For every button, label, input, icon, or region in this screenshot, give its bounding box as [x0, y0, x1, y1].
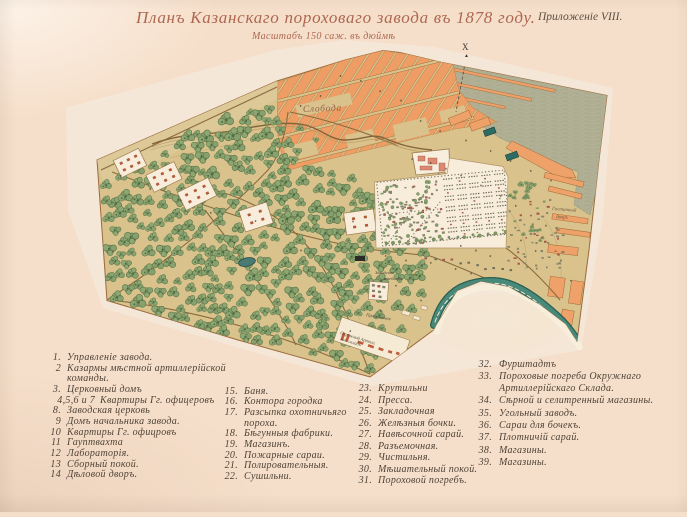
svg-text:дворъ: дворъ: [556, 215, 569, 221]
svg-text:Заводская: Заводская: [375, 270, 394, 275]
svg-text:X: X: [462, 42, 469, 52]
svg-text:▲: ▲: [464, 54, 469, 59]
svg-text:Слобода: Слобода: [303, 103, 342, 115]
svg-text:лечебница: лечебница: [382, 276, 403, 281]
